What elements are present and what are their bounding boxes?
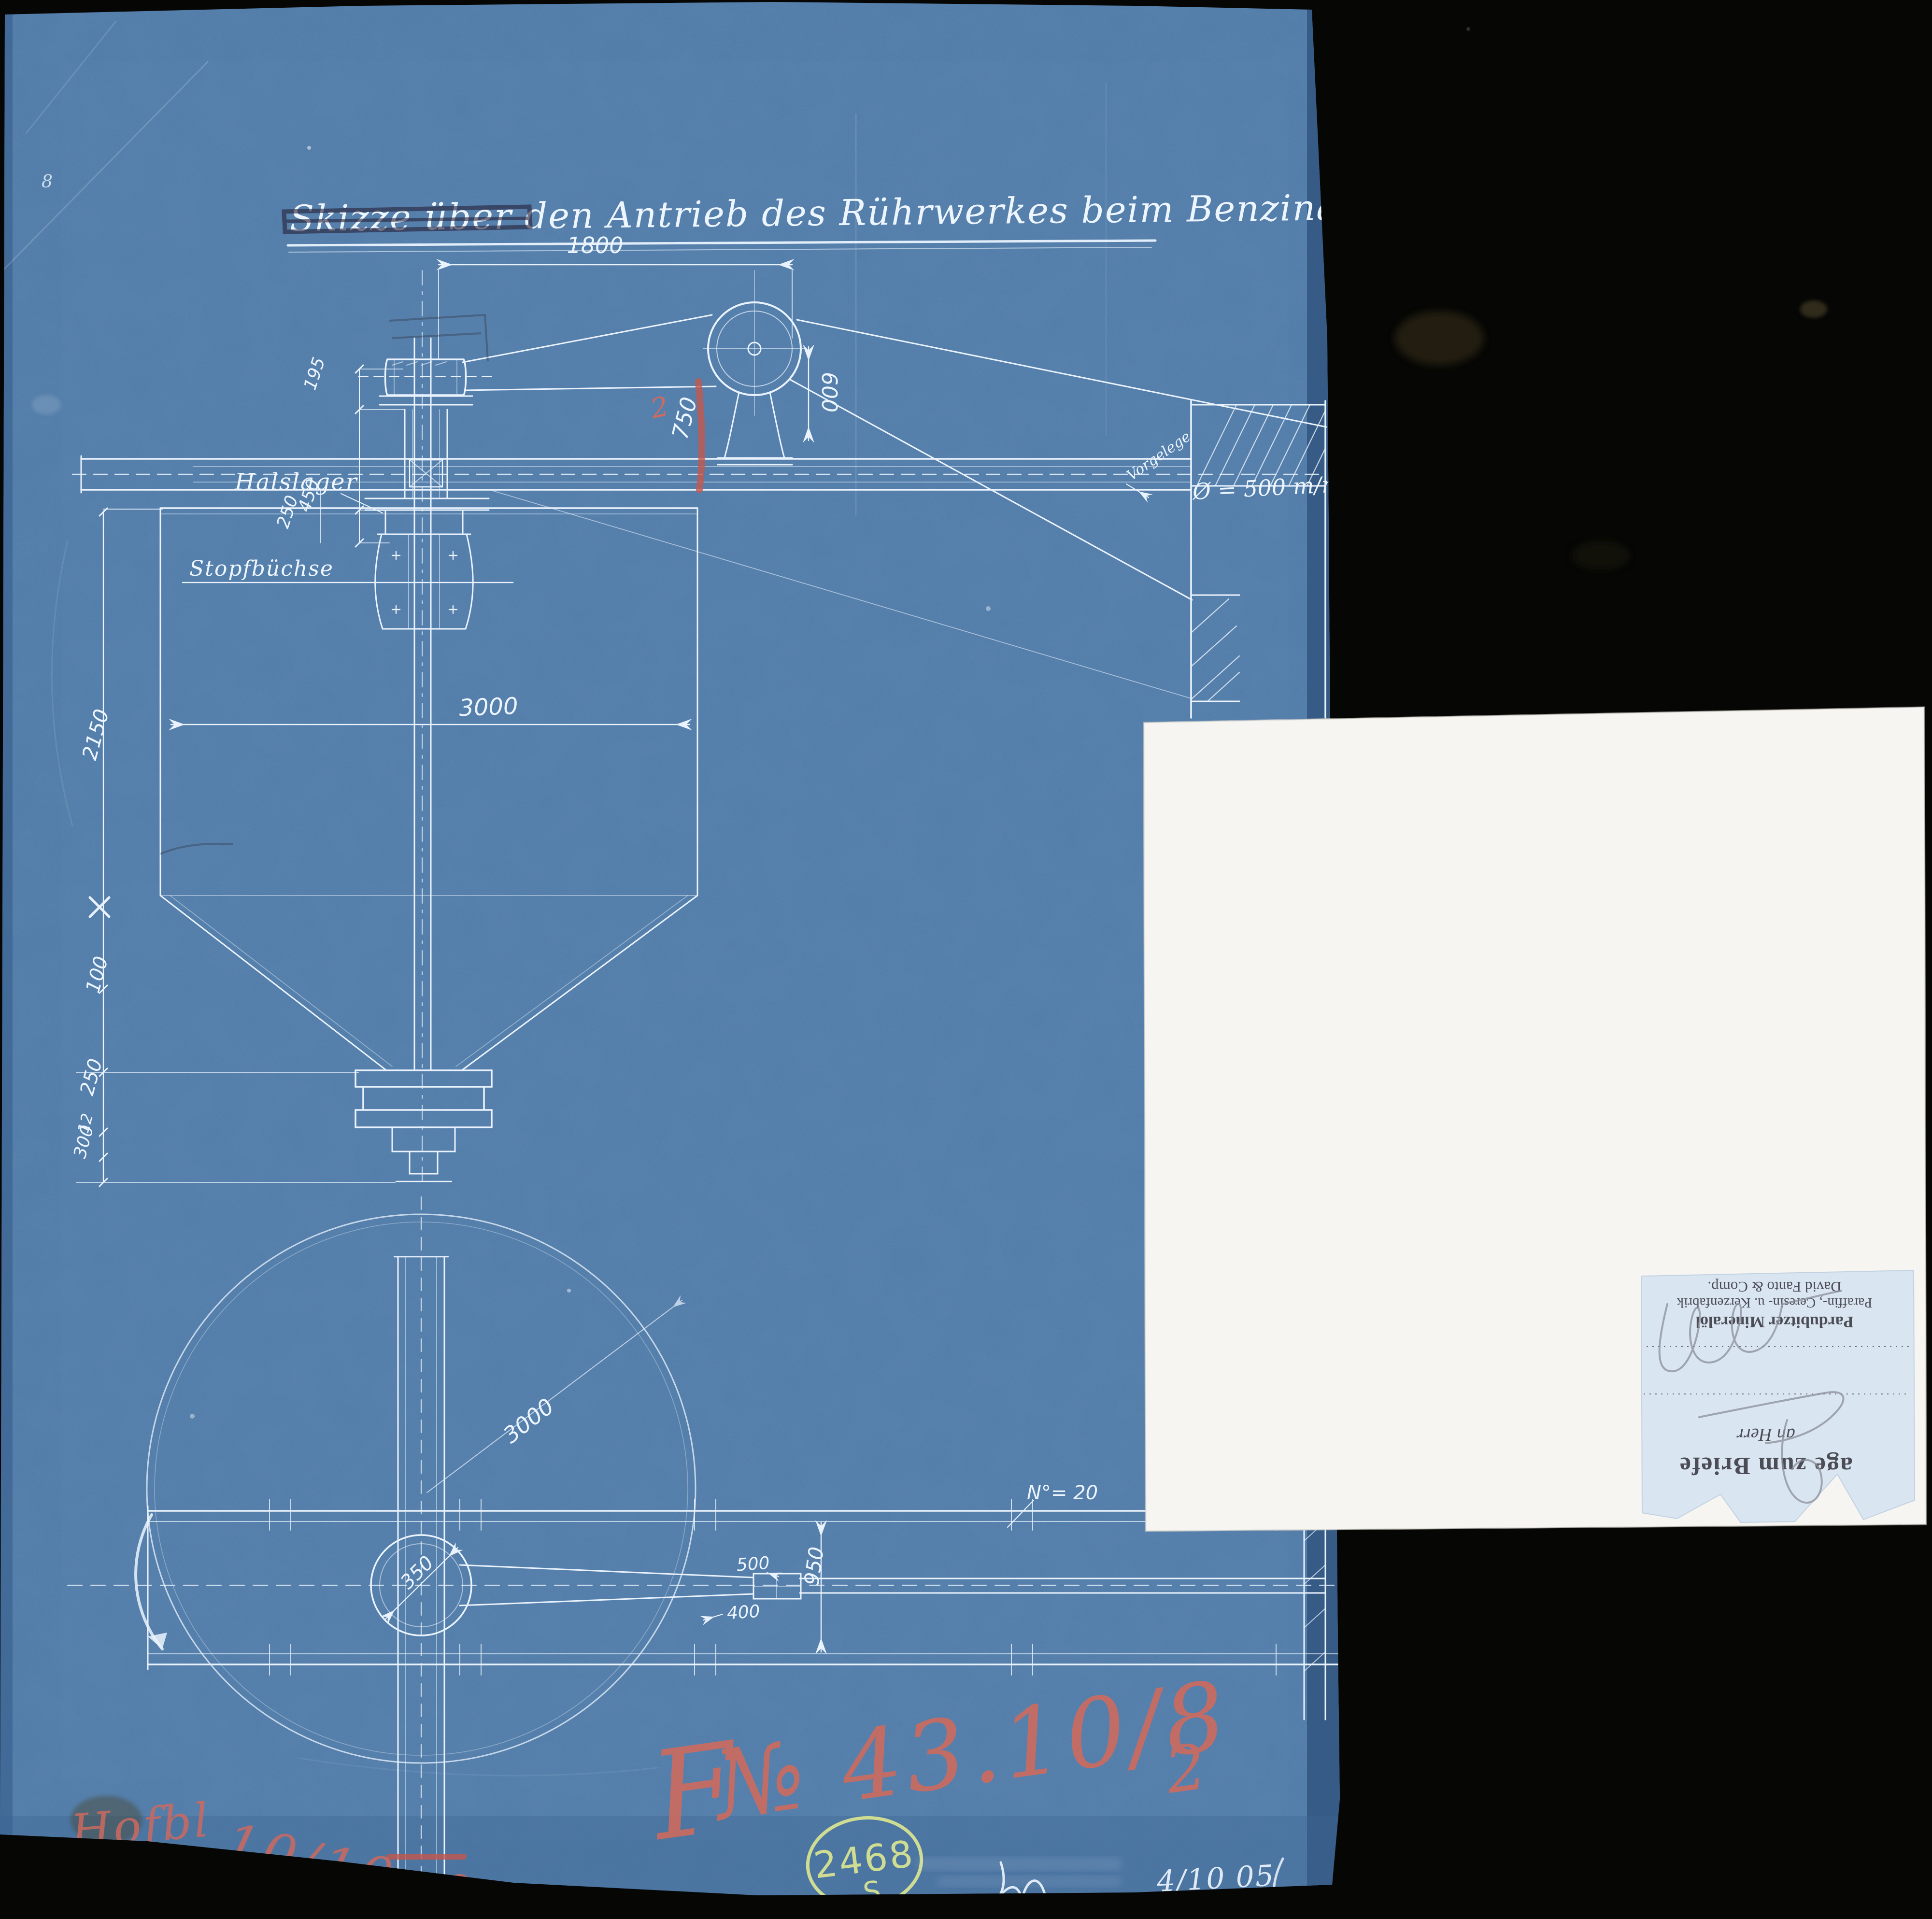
label-halslager: Halslager bbox=[234, 469, 358, 496]
attached-slip: age zum Briefe an Herr Pardubitzer Miner… bbox=[1641, 1270, 1915, 1522]
archival-scan: Skizze über den Antrieb des Rührwerkes b… bbox=[0, 0, 1932, 1919]
faint-stamp-mark bbox=[918, 1858, 1121, 1870]
slip-company-2: Paraffin-, Ceresin- u. Kerzenfabrik bbox=[1676, 1295, 1872, 1310]
red-revision-stroke bbox=[698, 382, 702, 490]
dim-3000-elevation: 3000 bbox=[458, 693, 518, 722]
dim-500: 500 bbox=[736, 1553, 770, 1576]
slip-salutation: an Herr bbox=[1736, 1424, 1795, 1445]
white-paper-overlay: age zum Briefe an Herr Pardubitzer Miner… bbox=[1144, 707, 1926, 1531]
scan-canvas: Skizze über den Antrieb des Rührwerkes b… bbox=[0, 0, 1932, 1919]
label-stopfbuechse: Stopfbüchse bbox=[189, 556, 334, 581]
dim-600: 600 bbox=[817, 372, 841, 412]
corner-mark: 8 bbox=[42, 172, 53, 192]
slip-company-3: David Fanto & Comp. bbox=[1707, 1279, 1841, 1295]
red-date-word: Hofbl bbox=[68, 1793, 213, 1859]
label-profile-n20: N°= 20 bbox=[1027, 1482, 1098, 1504]
background-smudges bbox=[1395, 27, 1827, 570]
signature-date: 4/10 05 bbox=[1155, 1859, 1275, 1899]
dim-1800: 1800 bbox=[567, 232, 623, 258]
paper-left-shadow-edge bbox=[0, 0, 13, 1919]
slip-heading: age zum Briefe bbox=[1679, 1452, 1853, 1479]
slip-company-1: Pardubitzer Mineralöl bbox=[1695, 1313, 1853, 1331]
dim-400: 400 bbox=[726, 1602, 760, 1624]
